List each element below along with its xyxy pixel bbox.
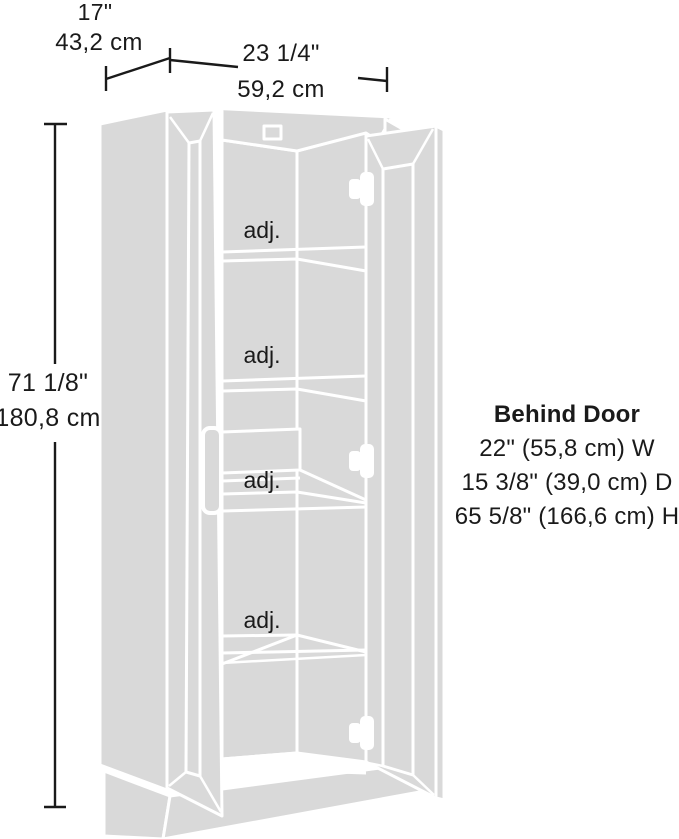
depth-cm-label: 43,2 cm bbox=[55, 29, 142, 56]
shelf-4-adj-label: adj. bbox=[243, 607, 280, 633]
height-dimension-line bbox=[44, 124, 67, 807]
height-inches-label: 71 1/8" bbox=[8, 369, 88, 397]
behind-door-title: Behind Door bbox=[494, 401, 640, 428]
left-door-recessed-panel bbox=[186, 141, 200, 776]
width-cm-label: 59,2 cm bbox=[237, 76, 324, 103]
left-door-handle bbox=[203, 428, 221, 513]
behind-door-height: 65 5/8" (166,6 cm) H bbox=[455, 503, 679, 530]
shelf-1-adj-label: adj. bbox=[243, 217, 280, 243]
interior-bottom-edge bbox=[222, 768, 366, 773]
depth-inches-label: 17" bbox=[78, 0, 113, 25]
cabinet-line-art: adj. adj. adj. adj. 17" 43,2 cm 23 1/4" … bbox=[0, 0, 679, 839]
left-door bbox=[100, 110, 222, 816]
width-inches-label: 23 1/4" bbox=[242, 40, 319, 67]
behind-door-depth: 15 3/8" (39,0 cm) D bbox=[461, 469, 672, 496]
right-door-thickness-edge bbox=[436, 126, 444, 800]
behind-door-width: 22" (55,8 cm) W bbox=[479, 435, 655, 462]
left-door-outer-face bbox=[100, 110, 167, 790]
shelf-2-adj-label: adj. bbox=[243, 342, 280, 368]
product-dimension-diagram: adj. adj. adj. adj. 17" 43,2 cm 23 1/4" … bbox=[0, 0, 679, 839]
behind-door-specs: Behind Door 22" (55,8 cm) W 15 3/8" (39,… bbox=[455, 401, 679, 530]
height-cm-label: 180,8 cm bbox=[0, 404, 101, 432]
shelf-3-adj-label: adj. bbox=[243, 467, 280, 493]
right-door-recessed-panel bbox=[383, 164, 413, 775]
shelf-4-back-edge bbox=[222, 635, 297, 636]
